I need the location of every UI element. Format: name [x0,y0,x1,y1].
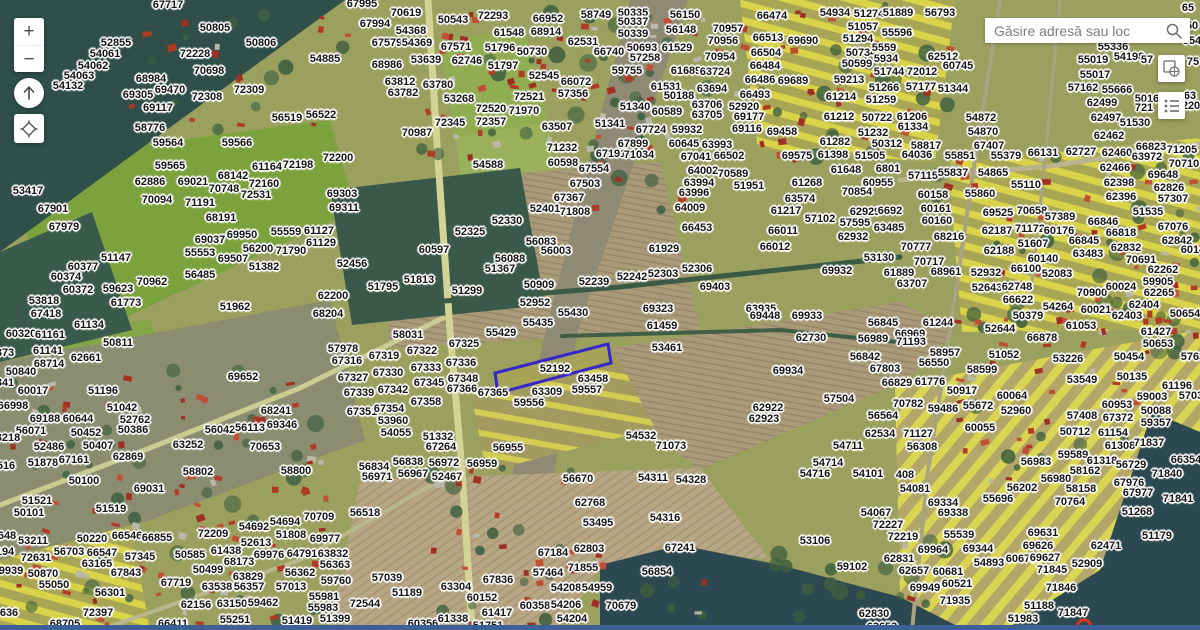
parcel-label[interactable]: 71855 [568,562,599,574]
parcel-label[interactable]: 71847 [1058,607,1089,619]
parcel-label[interactable]: 54865 [978,167,1009,179]
parcel-label[interactable]: 54885 [310,53,341,65]
parcel-label[interactable]: 50454 [1114,351,1145,363]
parcel-label[interactable]: 51795 [368,281,399,293]
parcel-label[interactable]: 71845 [1037,564,1068,576]
parcel-label[interactable]: 69933 [792,310,823,322]
parcel-label[interactable]: 67366 [447,383,478,395]
parcel-label[interactable]: 51057 [848,21,879,33]
parcel-label[interactable]: 69652 [228,371,259,383]
parcel-label[interactable]: 71127 [903,428,933,440]
parcel-label[interactable]: 56071 [16,425,47,437]
parcel-label[interactable]: 57464 [533,567,564,579]
parcel-label[interactable]: 61053 [1066,320,1097,332]
parcel-label[interactable]: 50188 [664,90,695,102]
parcel-label[interactable]: 5703 [1179,390,1200,402]
parcel-label[interactable]: 70956 [708,35,739,47]
parcel-label[interactable]: 60158 [918,189,949,201]
parcel-label[interactable]: 63538 [202,581,233,593]
parcel-label[interactable]: 55837 [938,167,969,179]
parcel-label[interactable]: 63780 [423,79,454,91]
parcel-label[interactable]: 72520 [476,103,507,115]
parcel-label[interactable]: 69950 [227,229,258,241]
parcel-label[interactable]: 61427 [1141,326,1172,338]
parcel-label[interactable]: 52303 [648,268,679,280]
parcel-label[interactable]: 63694 [697,83,728,95]
parcel-label[interactable]: 50312 [872,138,903,150]
parcel-label[interactable]: 61308 [1105,440,1136,452]
parcel-label[interactable]: 51259 [866,94,897,106]
parcel-label[interactable]: 59589 [1058,449,1089,461]
parcel-label[interactable]: 67554 [579,163,610,175]
parcel-label[interactable]: 62156 [181,599,212,611]
parcel-label[interactable]: 56971 [362,471,393,483]
parcel-label[interactable]: 55430 [558,307,589,319]
parcel-label[interactable]: 63996 [679,187,710,199]
parcel-label[interactable]: 67325 [449,338,480,350]
parcel-label[interactable]: 67330 [373,367,404,379]
locate-button[interactable] [14,114,44,143]
parcel-label[interactable]: 51299 [452,285,483,297]
parcel-label[interactable]: 55110 [1011,179,1041,191]
parcel-label[interactable]: 67979 [49,221,80,233]
parcel-label[interactable]: 50339 [618,28,649,40]
parcel-label[interactable]: 67184 [538,547,569,559]
parcel-label[interactable]: 56003 [541,245,572,257]
parcel-label[interactable]: 59102 [837,561,868,573]
parcel-label[interactable]: 50811 [103,337,133,349]
parcel-label[interactable]: 70748 [209,183,240,195]
parcel-label[interactable]: 66998 [0,400,28,412]
parcel-label[interactable]: 65 [1182,2,1194,14]
parcel-label[interactable]: 70900 [1077,287,1108,299]
parcel-label[interactable]: 52909 [1072,558,1103,570]
parcel-label[interactable]: 62746 [452,55,483,67]
parcel-label[interactable]: 55435 [523,317,554,329]
parcel-label[interactable]: 56845 [868,317,899,329]
parcel-label[interactable]: 52401 [530,203,561,215]
parcel-label[interactable]: 70094 [142,194,173,206]
parcel-label[interactable]: 70954 [705,51,736,63]
parcel-label[interactable]: 60372 [63,284,94,296]
parcel-label[interactable]: 55696 [983,493,1014,505]
parcel-label[interactable]: 61129 [306,237,336,249]
parcel-label[interactable]: 69525 [983,207,1014,219]
parcel-label[interactable]: 60644 [63,413,94,425]
parcel-label[interactable]: 56989 [858,333,889,345]
parcel-label[interactable]: 66131 [1028,147,1059,159]
parcel-label[interactable]: 75 [1187,56,1199,68]
parcel-label[interactable]: 69338 [938,507,969,519]
parcel-label[interactable]: 51505 [855,150,886,162]
parcel-label[interactable]: 67503 [570,178,601,190]
parcel-label[interactable]: 54870 [968,126,999,138]
parcel-label[interactable]: 61268 [792,177,823,189]
parcel-label[interactable]: 62730 [796,332,827,344]
parcel-label[interactable]: 69932 [822,265,853,277]
parcel-label[interactable]: 70709 [304,511,335,523]
parcel-label[interactable]: 51983 [1008,613,1039,625]
parcel-label[interactable]: 53417 [13,185,44,197]
parcel-label[interactable]: 71790 [276,245,307,257]
parcel-label[interactable]: 58158 [1066,483,1097,495]
parcel-label[interactable]: 72309 [234,84,265,96]
parcel-label[interactable]: 61161 [35,329,65,341]
parcel-label[interactable]: 50909 [524,279,555,291]
parcel-label[interactable]: 55860 [965,188,996,200]
parcel-label[interactable]: 52960 [1001,405,1032,417]
parcel-label[interactable]: 69575 [782,150,813,162]
parcel-label[interactable]: 62534 [865,428,896,440]
parcel-label[interactable]: 62262 [1148,264,1179,276]
parcel-label[interactable]: 66011 [768,225,798,237]
parcel-label[interactable]: 53106 [800,535,831,547]
parcel-label[interactable]: 62661 [71,352,102,364]
parcel-label[interactable]: 70698 [194,65,225,77]
parcel-label[interactable]: 62471 [1091,540,1122,552]
parcel-label[interactable]: 51042 [107,402,138,414]
parcel-label[interactable]: 60160 [922,215,953,227]
parcel-label[interactable]: 6801 [876,163,900,175]
parcel-label[interactable]: 55666 [1102,84,1133,96]
parcel-label[interactable]: 51813 [404,274,435,286]
parcel-label[interactable]: 51367 [485,263,516,275]
parcel-label[interactable]: 56703 [54,546,85,558]
parcel-label[interactable]: 56308 [907,441,938,453]
parcel-label[interactable]: 67354 [374,403,405,415]
parcel-label[interactable]: 54206 [551,599,582,611]
parcel-label[interactable]: 63252 [173,439,204,451]
parcel-label[interactable]: 58802 [183,466,214,478]
parcel-label[interactable]: 60374 [51,271,82,283]
parcel-label[interactable]: 57595 [840,217,871,229]
parcel-label[interactable]: 69346 [267,419,298,431]
parcel-label[interactable]: 61334 [898,121,929,133]
parcel-label[interactable]: 54061 [90,48,121,60]
parcel-label[interactable]: 70658 [1017,205,1048,217]
parcel-label[interactable]: 60021 [1081,304,1112,316]
parcel-label[interactable]: 56301 [95,587,126,599]
parcel-label[interactable]: 56113 [235,422,265,434]
parcel-label[interactable]: 71846 [1046,582,1077,594]
parcel-label[interactable]: 69648 [1148,169,1179,181]
parcel-label[interactable]: 52613 [241,537,272,549]
parcel-label[interactable]: 71232 [547,142,578,154]
parcel-label[interactable]: 62830 [859,608,890,620]
parcel-label[interactable]: 69117 [143,102,173,114]
parcel-label[interactable]: 67316 [332,355,363,367]
parcel-label[interactable]: 62200 [318,290,349,302]
parcel-label[interactable]: 72227 [873,519,904,531]
parcel-label[interactable]: 55429 [486,327,517,339]
parcel-label[interactable]: 59003 [1137,391,1168,403]
parcel-label[interactable]: 58031 [393,329,424,341]
parcel-label[interactable]: 52643 [972,282,1003,294]
parcel-label[interactable]: 70619 [391,7,422,19]
parcel-label[interactable]: 72531 [241,189,272,201]
parcel-label[interactable]: 63705 [692,109,723,121]
parcel-label[interactable]: 62748 [1002,281,1033,293]
parcel-label[interactable]: 50100 [69,475,100,487]
parcel-label[interactable]: 59566 [222,137,253,149]
parcel-label[interactable]: 57039 [372,572,403,584]
parcel-label[interactable]: 54204 [557,613,588,625]
parcel-label[interactable]: 53639 [411,54,442,66]
parcel-label[interactable]: 56959 [467,458,498,470]
parcel-label[interactable]: 61212 [824,111,855,123]
parcel-label[interactable]: 51535 [1133,206,1164,218]
parcel-label[interactable]: 54692 [239,521,270,533]
parcel-label[interactable]: 51530 [1120,117,1151,129]
parcel-label[interactable]: 60598 [548,157,579,169]
parcel-label[interactable]: 61548 [494,27,525,39]
parcel-label[interactable]: 66100 [1011,263,1042,275]
parcel-label[interactable]: 51052 [989,349,1020,361]
parcel-label[interactable]: 71034 [624,149,655,161]
parcel-label[interactable]: 52083 [1042,268,1073,280]
parcel-label[interactable]: 68914 [531,26,562,38]
parcel-label[interactable]: 64009 [675,202,706,214]
parcel-label[interactable]: 66513 [753,32,784,44]
parcel-label[interactable]: 62923 [749,413,780,425]
parcel-label[interactable]: 51266 [869,82,900,94]
parcel-label[interactable]: 67994 [360,18,391,30]
parcel-label[interactable]: 60358 [520,600,551,612]
parcel-label[interactable]: 59486 [928,403,959,415]
parcel-label[interactable]: 68191 [206,212,237,224]
parcel-label[interactable]: 66740 [594,46,625,58]
parcel-label[interactable]: 50101 [14,507,45,519]
parcel-label[interactable]: 60161 [921,203,952,215]
parcel-label[interactable]: 55017 [1080,69,1111,81]
parcel-label[interactable]: 67342 [378,384,409,396]
parcel-label[interactable]: 54716 [800,468,831,480]
parcel-label[interactable]: 60064 [997,390,1028,402]
parcel-label[interactable]: 62396 [1106,191,1137,203]
parcel-label[interactable]: 58749 [581,9,612,21]
parcel-label[interactable]: 71073 [656,440,687,452]
parcel-label[interactable]: 51951 [734,180,765,192]
parcel-label[interactable]: 67264 [426,441,457,453]
parcel-label[interactable]: 50806 [246,37,277,49]
parcel-label[interactable]: 57258 [630,52,661,64]
parcel-label[interactable]: 69977 [310,533,341,545]
parcel-label[interactable]: 59755 [612,65,643,77]
parcel-label[interactable]: 61689 [671,65,702,77]
parcel-label[interactable]: 57345 [125,551,156,563]
zoom-out-button[interactable]: − [14,45,44,72]
parcel-label[interactable]: 50407 [83,440,114,452]
parcel-label[interactable]: 60521 [942,578,973,590]
parcel-label[interactable]: 70589 [718,168,749,180]
parcel-label[interactable]: 61648 [831,164,862,176]
parcel-label[interactable]: 54208 [551,582,582,594]
parcel-label[interactable]: 62886 [135,176,166,188]
parcel-label[interactable]: 61127 [304,225,334,237]
parcel-label[interactable]: 70962 [137,276,168,288]
parcel-label[interactable]: 50722 [862,112,893,124]
parcel-label[interactable]: 69507 [218,253,249,265]
parcel-label[interactable]: 67191 [596,148,627,160]
parcel-label[interactable]: 72012 [907,66,938,78]
parcel-label[interactable]: 68986 [372,59,403,71]
parcel-label[interactable]: 67339 [344,387,375,399]
basemap-gallery-button[interactable] [1158,55,1185,82]
parcel-label[interactable]: 55596 [882,27,913,39]
parcel-label[interactable]: 57013 [276,581,307,593]
parcel-label[interactable]: 50088 [1141,405,1172,417]
parcel-label[interactable]: 54369 [402,37,433,49]
parcel-label[interactable]: 51889 [883,7,914,19]
parcel-label[interactable]: 66845 [1069,235,1100,247]
parcel-label[interactable]: 66546 [112,530,143,542]
parcel-label[interactable]: 57 [1141,54,1153,66]
parcel-label[interactable]: 62187 [982,225,1013,237]
parcel-label[interactable]: 53960 [378,415,409,427]
parcel-label[interactable]: 54934 [820,7,851,19]
parcel-label[interactable]: 60745 [943,60,974,72]
parcel-label[interactable]: 70957 [713,23,744,35]
parcel-label[interactable]: 66878 [1027,332,1058,344]
parcel-label[interactable]: 50220 [77,533,108,545]
parcel-label[interactable]: 53461 [652,342,683,354]
parcel-label[interactable]: 51294 [843,33,874,45]
parcel-label[interactable]: 61773 [111,297,142,309]
parcel-label[interactable]: 69311 [329,202,359,214]
parcel-label[interactable]: 66493 [740,89,771,101]
parcel-label[interactable]: 67333 [411,362,442,374]
parcel-label[interactable]: 648 [0,530,16,542]
parcel-label[interactable]: 55559 [271,226,302,238]
parcel-label[interactable]: 54328 [676,474,707,486]
parcel-label[interactable]: 70679 [606,600,637,612]
parcel-label[interactable]: 57307 [1158,193,1189,205]
parcel-label[interactable]: 59623 [103,283,134,295]
parcel-label[interactable]: 53549 [1067,374,1098,386]
parcel-label[interactable]: 50135 [1117,371,1148,383]
parcel-label[interactable]: 71191 [185,197,215,209]
parcel-label[interactable]: 51341 [595,118,626,130]
parcel-label[interactable]: 69690 [788,35,819,47]
parcel-label[interactable]: 67579 [372,37,403,49]
parcel-label[interactable]: 62657 [899,565,930,577]
parcel-label[interactable]: 60645 [669,138,700,150]
parcel-label[interactable]: 516 [0,460,15,472]
parcel-label[interactable]: 50337 [618,16,649,28]
parcel-label[interactable]: 50599 [842,58,873,70]
parcel-label[interactable]: 62803 [574,543,605,555]
parcel-label[interactable]: 59760 [321,575,352,587]
parcel-label[interactable]: 67319 [369,350,400,362]
parcel-label[interactable]: 69037 [195,234,226,246]
parcel-label[interactable]: 50653 [1143,338,1174,350]
parcel-label[interactable]: 71193 [896,336,926,348]
parcel-label[interactable]: 51962 [220,301,251,313]
parcel-label[interactable]: 52486 [34,441,65,453]
parcel-label[interactable]: 71841 [1163,493,1194,505]
parcel-label[interactable]: 57162 [1068,82,1099,94]
parcel-label[interactable]: 71837 [1134,437,1165,449]
parcel-label[interactable]: 70782 [893,398,924,410]
parcel-label[interactable]: 56729 [1116,459,1147,471]
parcel-label[interactable]: 55539 [944,529,975,541]
parcel-label[interactable]: 69177 [734,111,765,123]
parcel-label[interactable]: 68216 [934,231,965,243]
parcel-label[interactable]: 63507 [542,121,573,133]
parcel-label[interactable]: 67418 [31,308,62,320]
parcel-label[interactable]: 60589 [652,106,683,118]
parcel-label[interactable]: 56042 [205,424,236,436]
parcel-label[interactable]: 60953 [1102,399,1133,411]
parcel-label[interactable]: 56362 [285,567,316,579]
parcel-label[interactable]: 68173 [224,556,255,568]
parcel-label[interactable]: 71205 [1167,144,1198,156]
parcel-label[interactable]: 72521 [514,91,545,103]
parcel-label[interactable]: 56550 [919,357,950,369]
parcel-label[interactable]: 62460 [1102,147,1133,159]
parcel-label[interactable]: 54132 [53,80,84,92]
parcel-label[interactable]: 66474 [757,10,788,22]
parcel-label[interactable]: 67161 [59,454,90,466]
parcel-label[interactable]: 62462 [1094,130,1125,142]
parcel-label[interactable]: 58599 [967,364,998,376]
parcel-label[interactable]: 61214 [826,91,857,103]
parcel-label[interactable]: 63485 [874,222,905,234]
parcel-label[interactable]: 53226 [1053,353,1084,365]
parcel-label[interactable]: 63165 [82,558,113,570]
parcel-label[interactable]: 52239 [579,276,610,288]
parcel-label[interactable]: 67803 [870,363,901,375]
parcel-label[interactable]: 59213 [834,74,865,86]
parcel-label[interactable]: 60597 [419,244,450,256]
parcel-label[interactable]: 67901 [38,203,69,215]
parcel-label[interactable]: 54588 [473,159,504,171]
legend-list-button[interactable] [1158,92,1185,119]
parcel-label[interactable]: 51519 [96,503,127,515]
parcel-label[interactable]: 69949 [910,582,941,594]
parcel-label[interactable]: 56150 [670,9,701,21]
parcel-label[interactable]: 69934 [773,365,804,377]
parcel-label[interactable]: 67358 [411,396,442,408]
parcel-label[interactable]: 72200 [323,152,354,164]
parcel-label[interactable]: 72209 [198,528,229,540]
parcel-label[interactable]: 68204 [313,308,344,320]
parcel-label[interactable]: 69031 [134,483,165,495]
parcel-label[interactable]: 70710 [1169,158,1200,170]
parcel-label[interactable]: 69305 [123,89,154,101]
parcel-label[interactable]: 52644 [985,323,1016,335]
parcel-label[interactable]: 66354 [1171,454,1200,466]
parcel-label[interactable]: 56518 [350,507,381,519]
parcel-label[interactable]: 72357 [476,116,507,128]
parcel-label[interactable]: 53268 [444,93,475,105]
parcel-label[interactable]: 57356 [558,88,589,100]
selected-parcel-label[interactable]: 52192 [540,363,571,375]
parcel-label[interactable]: 67571 [441,41,472,53]
parcel-label[interactable]: 57102 [805,213,836,225]
parcel-label[interactable]: 408 [896,469,914,481]
parcel-label[interactable]: 63707 [897,278,928,290]
parcel-label[interactable]: 56983 [1021,456,1052,468]
parcel-label[interactable]: 54264 [1043,301,1074,313]
parcel-label[interactable]: 64036 [902,149,933,161]
parcel-label[interactable]: 70777 [901,241,932,253]
parcel-label[interactable]: 67836 [483,574,514,586]
parcel-label[interactable]: 51179 [1142,530,1172,542]
parcel-label[interactable]: 54872 [966,112,997,124]
parcel-label[interactable]: 67241 [665,542,696,554]
parcel-label[interactable]: 53495 [583,517,614,529]
